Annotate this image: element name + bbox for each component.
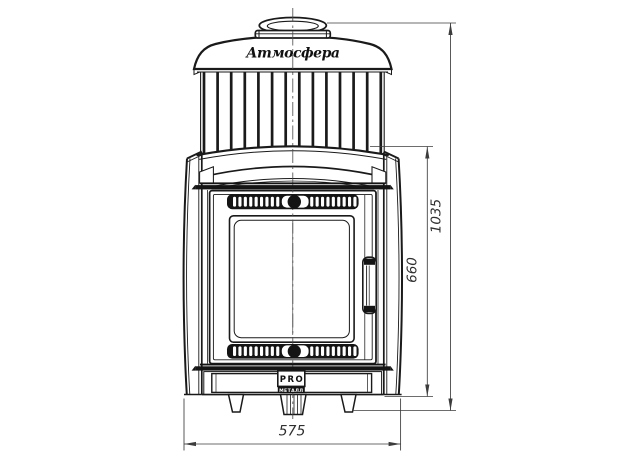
manufacturer-logo: PRO МЕТАЛЛ — [278, 371, 305, 394]
air-control-knob-top — [288, 195, 301, 208]
air-vent-top — [227, 194, 359, 209]
dim-label-base-width: 575 — [279, 424, 306, 440]
air-vent-bottom — [227, 344, 359, 359]
logo-text-pro: PRO — [280, 375, 305, 385]
dim-label-overall-height: 1035 — [429, 199, 445, 233]
lower-shelf — [192, 364, 394, 371]
door-handle — [363, 257, 376, 313]
dim-label-body-height: 660 — [405, 257, 421, 283]
logo-text-metall: МЕТАЛЛ — [279, 388, 303, 394]
air-control-knob-bottom — [288, 345, 301, 358]
stove-technical-drawing: Атмосфера — [0, 0, 624, 460]
upper-shelf — [192, 182, 394, 189]
door-glass — [230, 216, 355, 342]
leg-center — [281, 395, 307, 415]
